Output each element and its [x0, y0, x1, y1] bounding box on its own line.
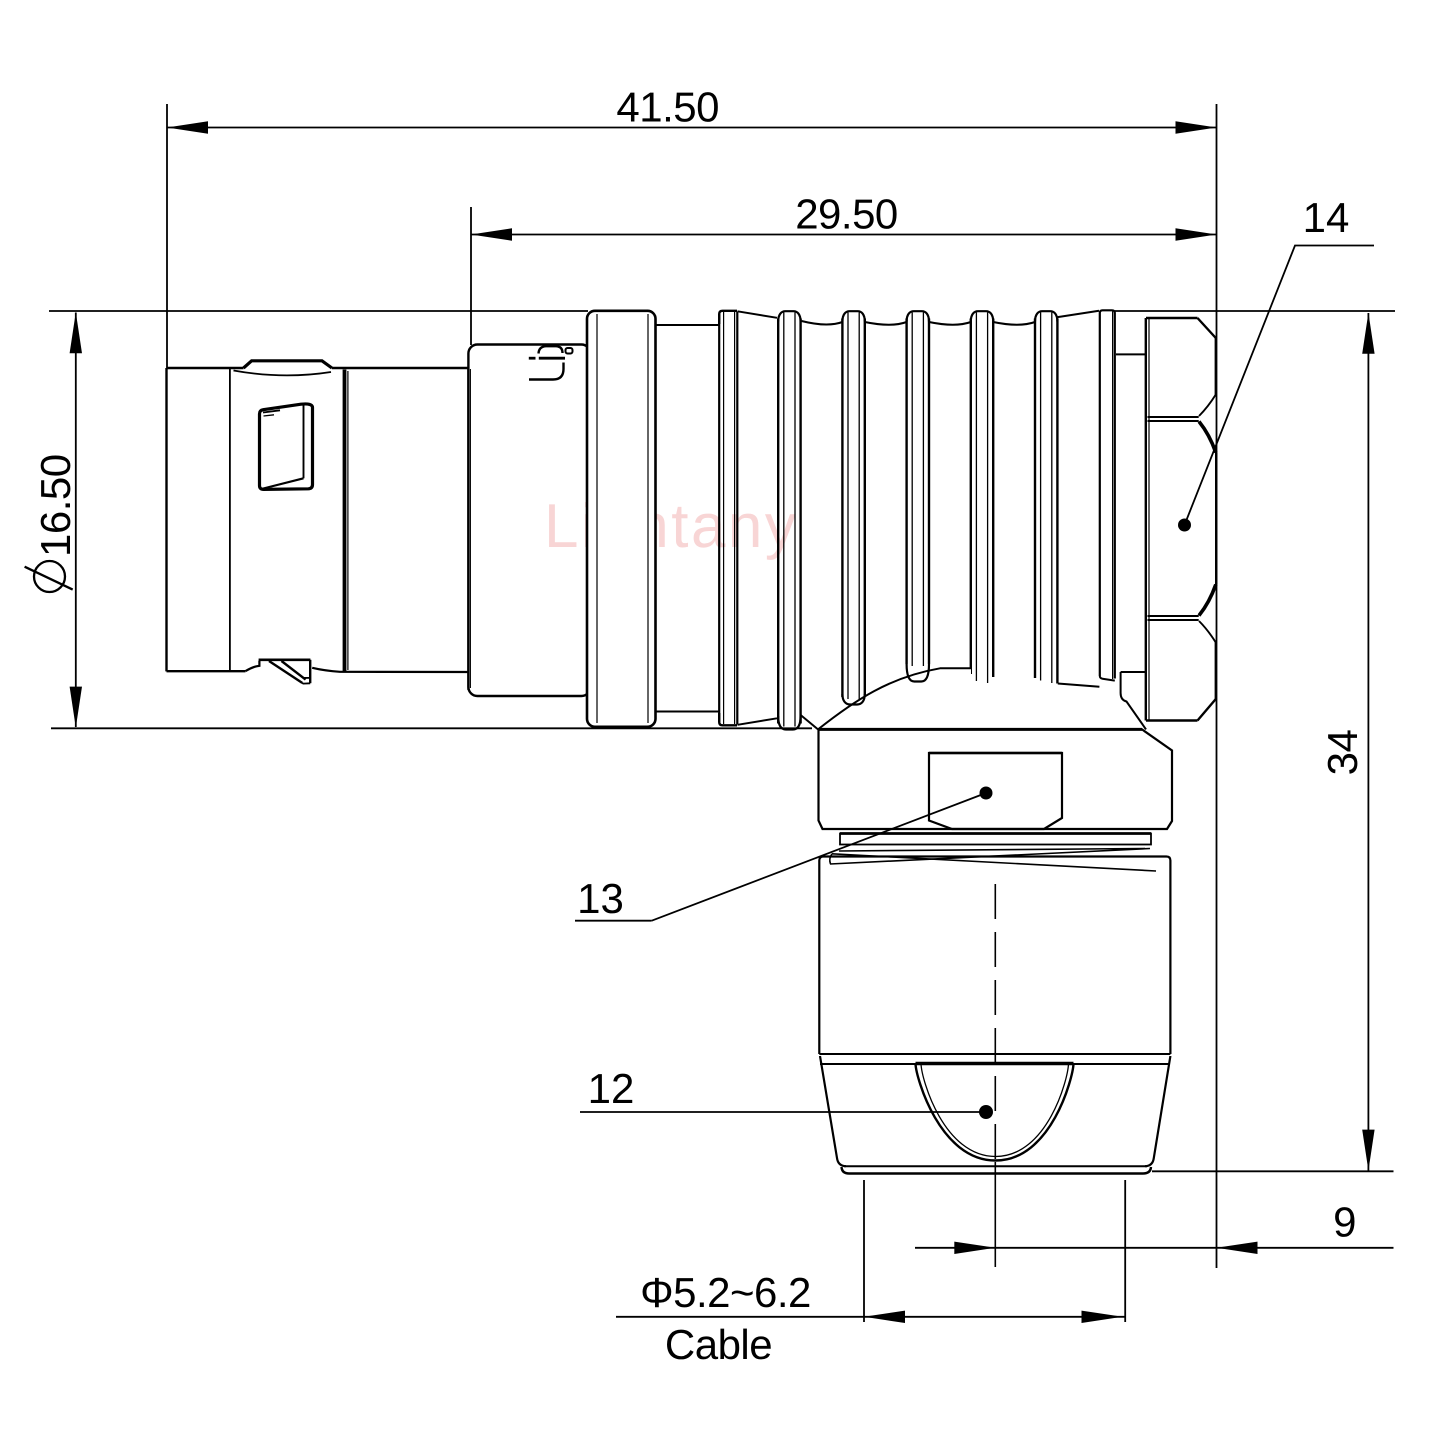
svg-text:29.50: 29.50 — [795, 190, 898, 237]
svg-text:Cable: Cable — [665, 1321, 772, 1368]
svg-text:41.50: 41.50 — [616, 84, 719, 131]
svg-text:13: 13 — [577, 875, 624, 922]
svg-text:Lightany: Lightany — [544, 492, 798, 561]
svg-text:9: 9 — [1333, 1199, 1356, 1246]
svg-text:12: 12 — [588, 1065, 635, 1112]
svg-text:34: 34 — [1319, 730, 1366, 776]
svg-text:16.50: 16.50 — [32, 454, 79, 557]
svg-text:Φ5.2~6.2: Φ5.2~6.2 — [640, 1269, 811, 1316]
svg-text:14: 14 — [1303, 194, 1350, 241]
